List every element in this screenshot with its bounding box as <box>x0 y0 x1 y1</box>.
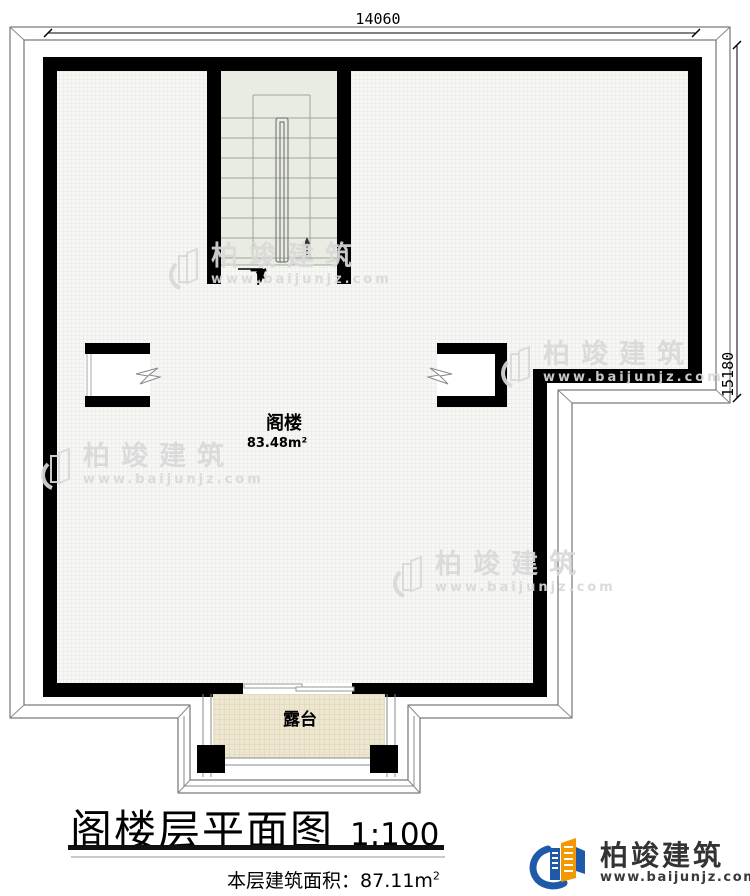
dimension-top <box>44 29 700 37</box>
floor-area-value: 87.11m <box>360 870 433 892</box>
attic-name: 阁楼 <box>266 412 302 434</box>
stair-down-label: 下 <box>250 268 267 288</box>
floorplan-page: 14060 15180 下 阁楼 83.48m² 露台 柏竣建筑 www.bai… <box>0 0 750 896</box>
dimension-right-value: 15180 <box>719 352 737 397</box>
terrace <box>197 694 398 777</box>
pillar <box>197 745 225 773</box>
company-logo: 柏竣建筑 www.baijunjz.com <box>528 836 750 890</box>
floor-area-text: 本层建筑面积：87.11m2 <box>227 866 440 893</box>
staircase <box>221 71 337 265</box>
logo-brand: 柏竣建筑 <box>600 841 750 870</box>
floor-area-label: 本层建筑面积： <box>227 870 360 892</box>
floor-area-sup: 2 <box>433 870 440 883</box>
company-logo-icon <box>528 836 594 890</box>
logo-url: www.baijunjz.com <box>600 870 750 885</box>
dimension-right <box>733 41 741 402</box>
title-underline <box>68 845 444 850</box>
roof-window-right <box>428 343 507 407</box>
title-underline-shadow <box>71 856 445 858</box>
dimension-top-value: 14060 <box>355 10 400 28</box>
pillar <box>370 745 398 773</box>
terrace-sliding-door <box>244 684 354 691</box>
attic-area: 83.48m² <box>247 436 307 451</box>
terrace-name: 露台 <box>283 709 317 730</box>
floorplan-drawing: 14060 15180 下 阁楼 83.48m² 露台 <box>0 0 750 896</box>
roof-window-left <box>85 343 160 407</box>
